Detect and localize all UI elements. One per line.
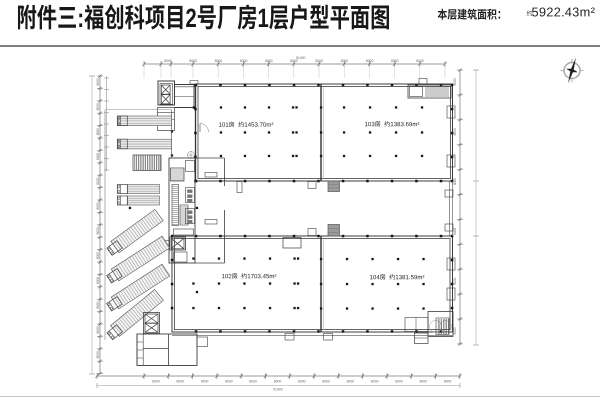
svg-text:8000: 8000 (420, 380, 428, 384)
svg-text:8000: 8000 (274, 380, 282, 384)
svg-text:8000: 8000 (453, 228, 457, 235)
svg-text:8000: 8000 (189, 59, 197, 63)
svg-text:8000: 8000 (96, 301, 100, 308)
svg-text:8000: 8000 (96, 128, 100, 135)
svg-text:8000: 8000 (366, 59, 374, 63)
svg-text:8000: 8000 (453, 128, 457, 135)
svg-text:8000: 8000 (416, 59, 424, 63)
svg-text:8000: 8000 (371, 380, 379, 384)
svg-text:8000: 8000 (96, 177, 100, 184)
svg-text:8000: 8000 (96, 326, 100, 333)
svg-text:8000: 8000 (453, 178, 457, 185)
svg-text:8000: 8000 (240, 59, 248, 63)
svg-text:8000: 8000 (96, 227, 100, 234)
svg-text:8000: 8000 (96, 103, 100, 110)
svg-text:8000: 8000 (395, 380, 403, 384)
svg-text:8000: 8000 (215, 59, 223, 63)
svg-text:8000: 8000 (96, 277, 100, 284)
svg-text:8000: 8000 (96, 351, 100, 358)
svg-text:8000: 8000 (322, 380, 330, 384)
svg-text:8000: 8000 (347, 380, 355, 384)
svg-text:8000: 8000 (315, 59, 323, 63)
svg-text:8000: 8000 (96, 252, 100, 259)
svg-text:8000: 8000 (225, 380, 233, 384)
svg-text:8000: 8000 (444, 380, 452, 384)
svg-text:8000: 8000 (164, 59, 172, 63)
svg-text:8000: 8000 (298, 380, 306, 384)
svg-text:8000: 8000 (249, 380, 257, 384)
svg-text:8000: 8000 (96, 78, 100, 85)
svg-text:8000: 8000 (265, 59, 273, 63)
svg-text:51400: 51400 (296, 56, 306, 60)
svg-text:8000: 8000 (453, 277, 457, 284)
svg-text:8000: 8000 (341, 59, 349, 63)
svg-text:8000: 8000 (96, 153, 100, 160)
svg-text:8000: 8000 (391, 59, 399, 63)
svg-text:8000: 8000 (201, 380, 209, 384)
svg-text:8000: 8000 (177, 380, 185, 384)
svg-text:8000: 8000 (96, 202, 100, 209)
svg-text:8000: 8000 (152, 380, 160, 384)
svg-text:8000: 8000 (453, 78, 457, 85)
svg-text:51400: 51400 (273, 388, 283, 392)
svg-text:8000: 8000 (453, 327, 457, 334)
